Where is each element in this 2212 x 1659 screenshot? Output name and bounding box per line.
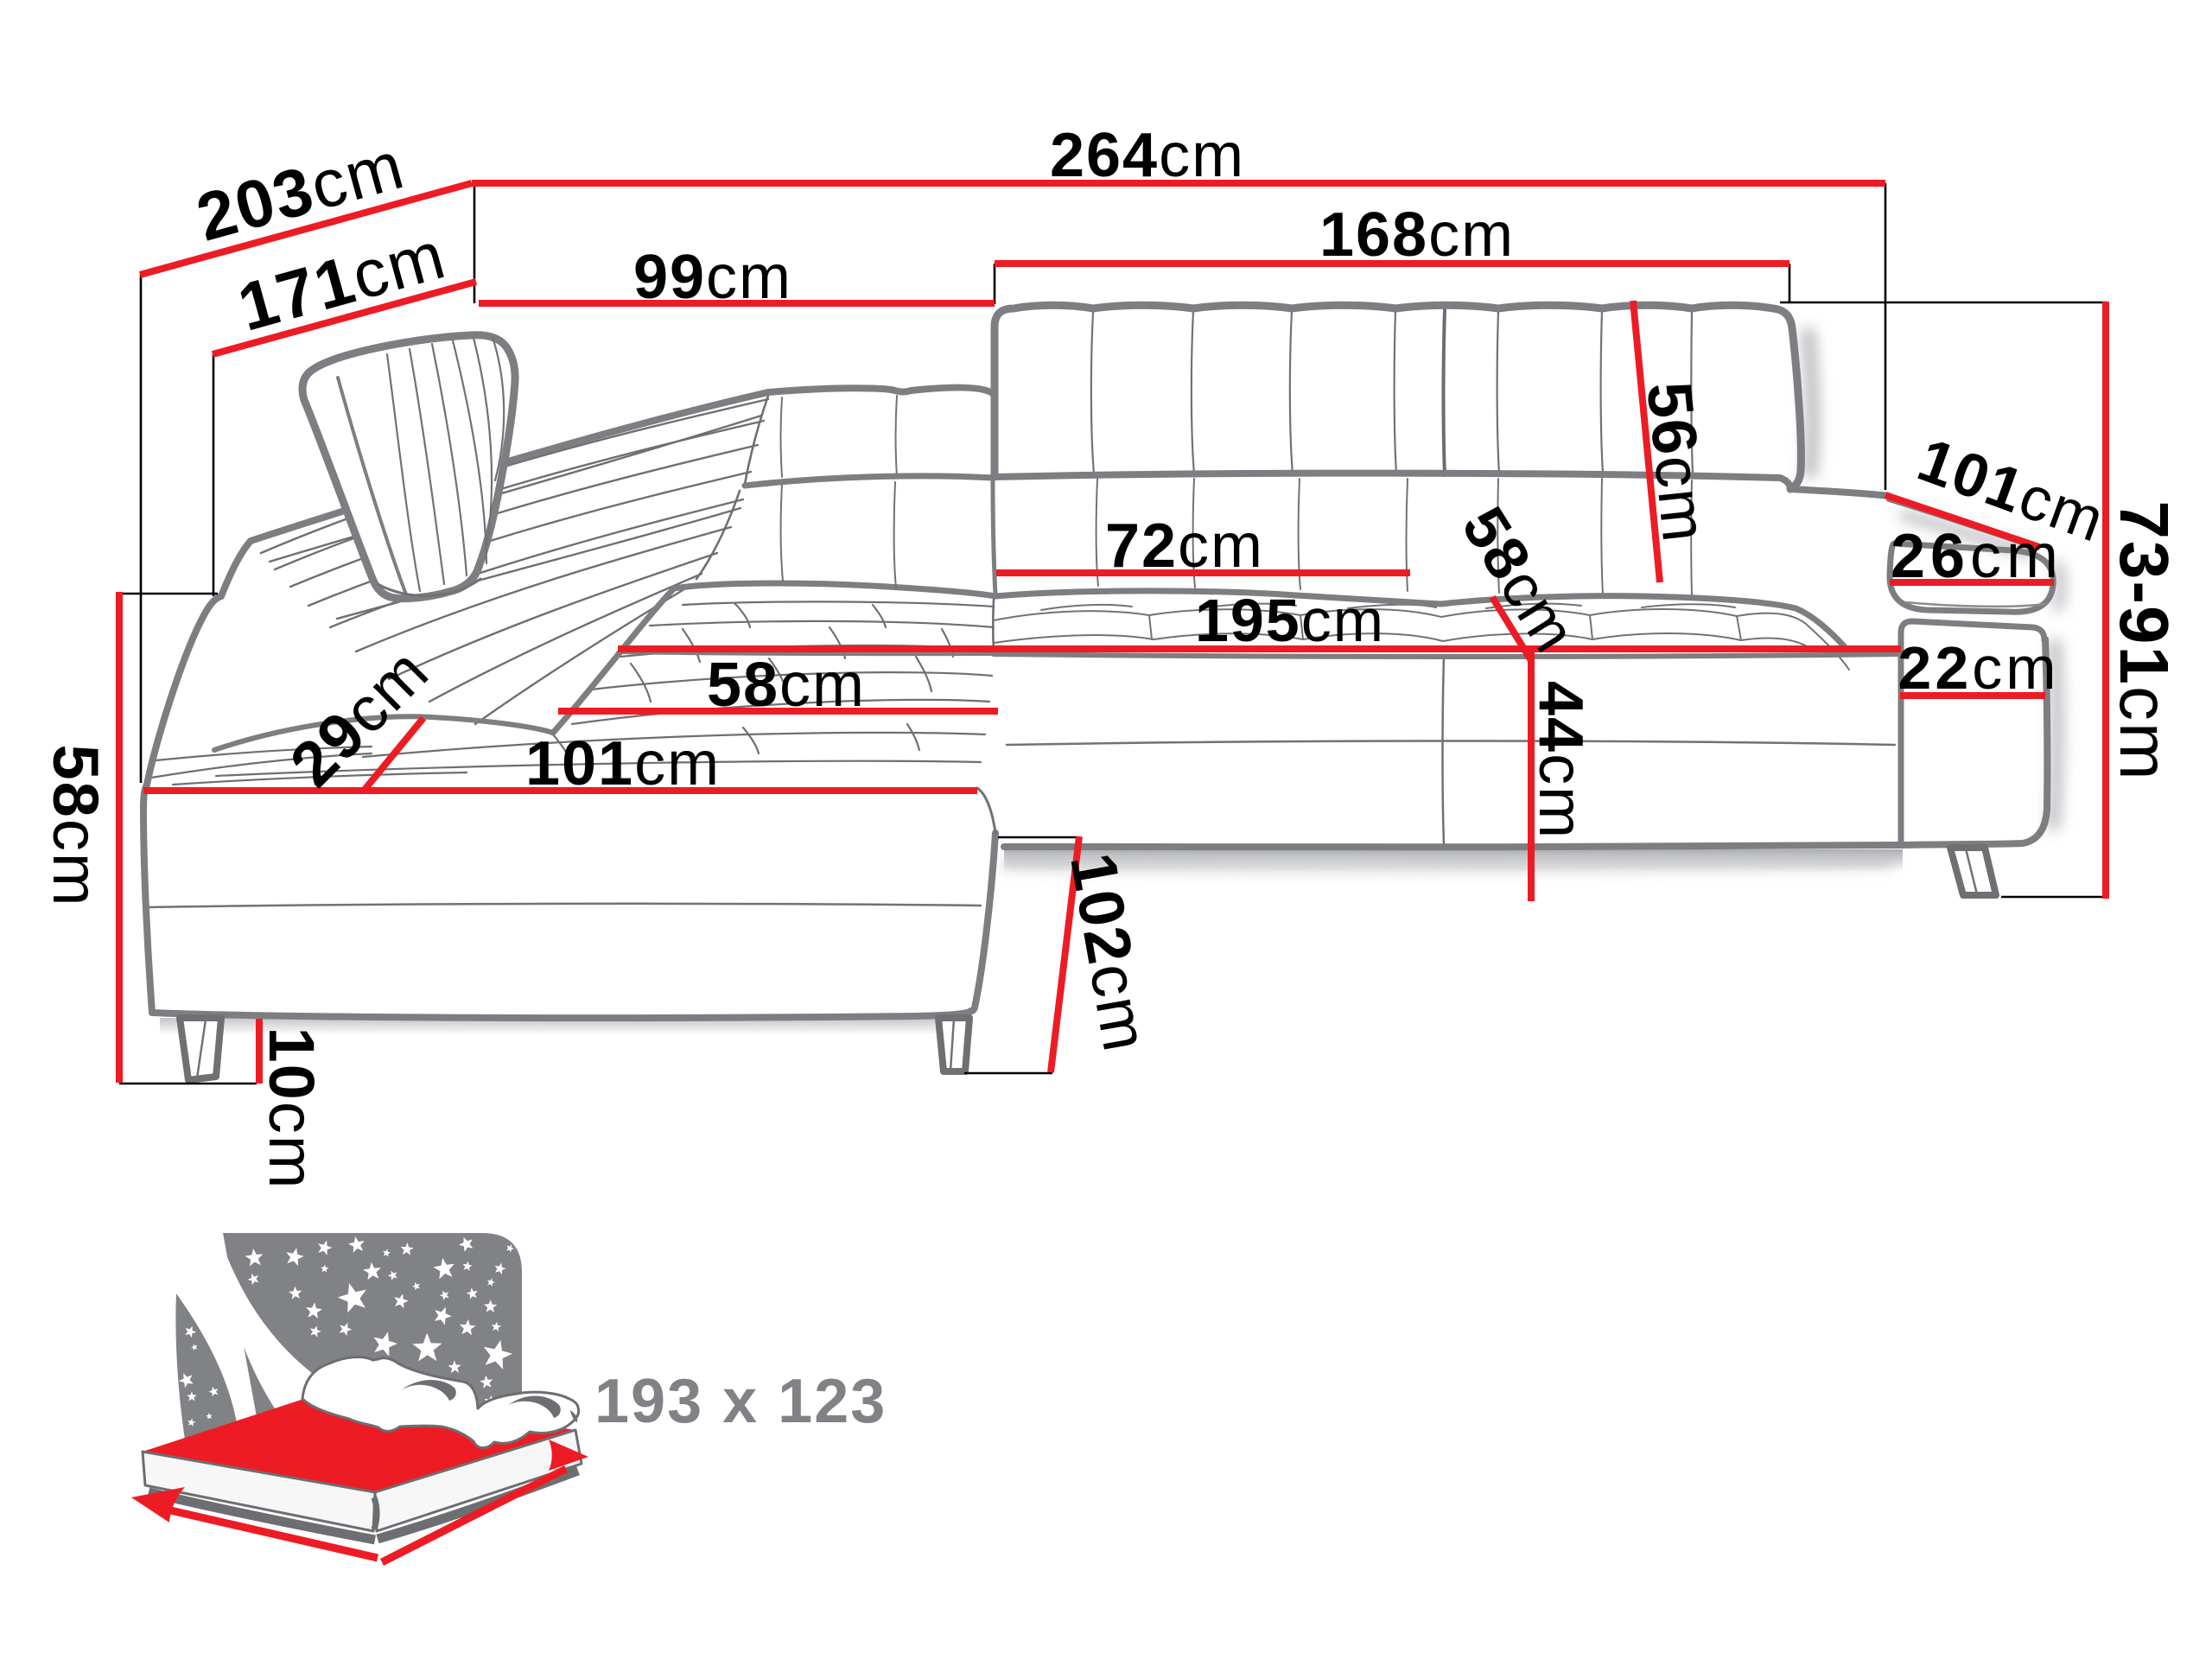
svg-text:193 x 123: 193 x 123 — [594, 1367, 887, 1436]
svg-text:101cm: 101cm — [525, 729, 721, 798]
svg-text:26cm: 26cm — [1891, 522, 2063, 591]
svg-text:264cm: 264cm — [1050, 121, 1245, 190]
svg-text:72cm: 72cm — [1105, 512, 1264, 581]
svg-text:195cm: 195cm — [1195, 587, 1385, 654]
svg-text:58cm: 58cm — [707, 651, 866, 720]
svg-text:73-91cm: 73-91cm — [2106, 500, 2183, 781]
svg-text:99cm: 99cm — [633, 243, 792, 312]
svg-text:168cm: 168cm — [1319, 200, 1515, 270]
svg-text:44cm: 44cm — [1526, 681, 1595, 840]
svg-text:22cm: 22cm — [1897, 634, 2059, 702]
svg-text:10cm: 10cm — [256, 1027, 327, 1191]
svg-text:58cm: 58cm — [40, 745, 111, 908]
